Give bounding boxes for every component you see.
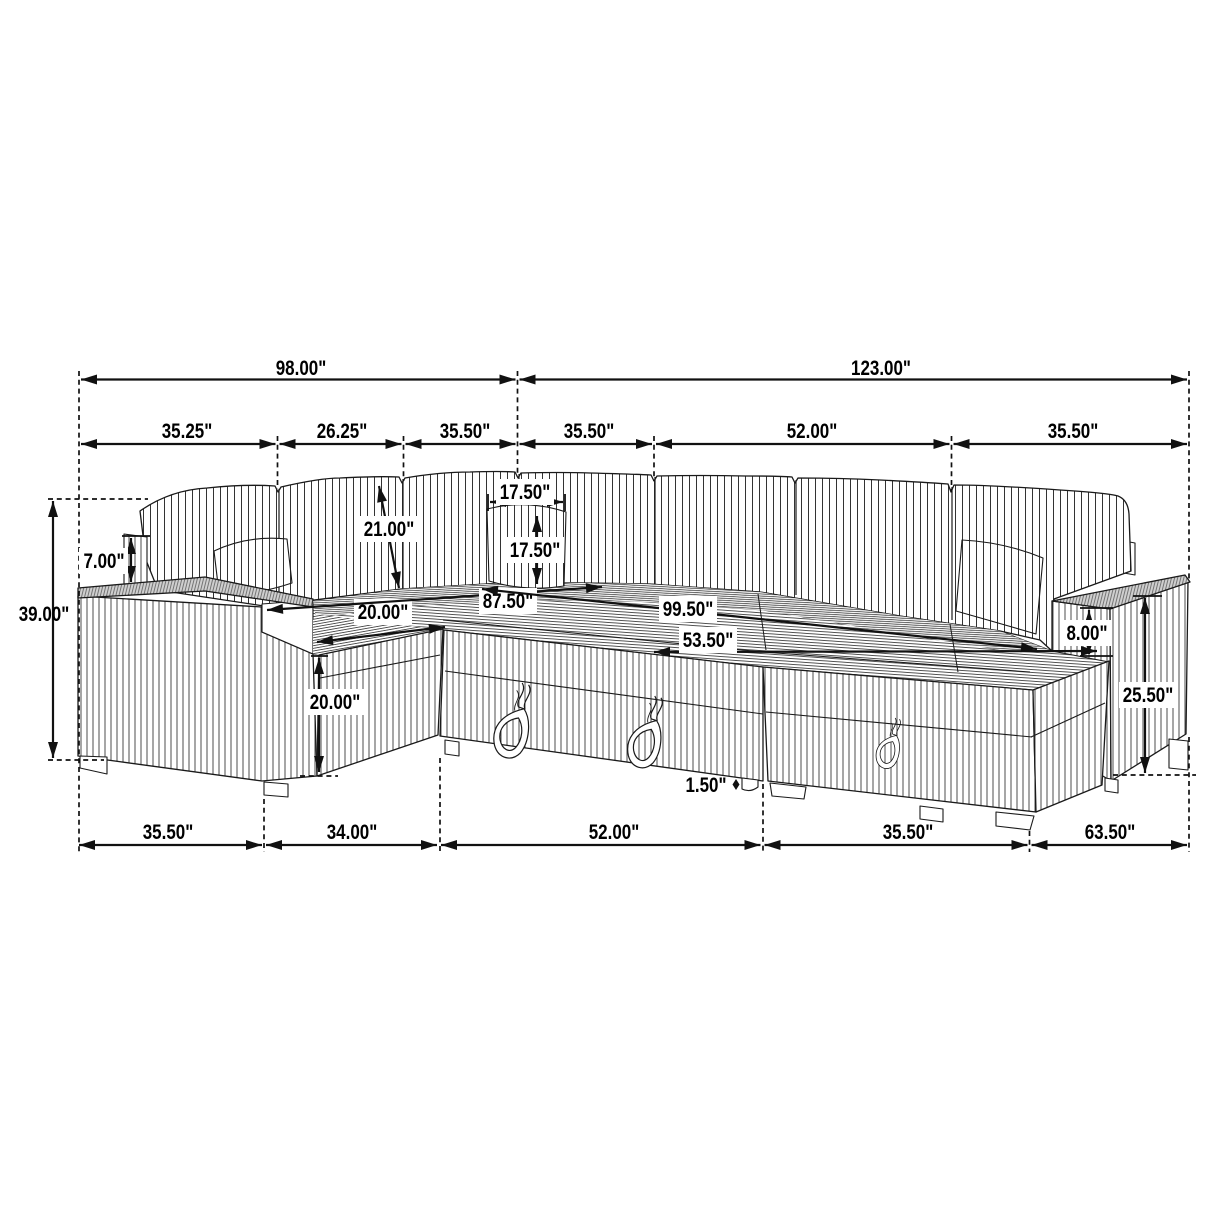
svg-text:26.25": 26.25"	[317, 420, 368, 443]
svg-text:39.00": 39.00"	[19, 603, 70, 626]
svg-text:52.00": 52.00"	[787, 420, 838, 443]
svg-text:1.50": 1.50"	[686, 774, 727, 797]
svg-text:35.50": 35.50"	[1048, 420, 1099, 443]
svg-text:98.00": 98.00"	[276, 357, 327, 380]
svg-text:20.00": 20.00"	[358, 601, 409, 624]
svg-text:123.00": 123.00"	[851, 357, 911, 380]
svg-text:99.50": 99.50"	[663, 598, 714, 621]
svg-text:35.25": 35.25"	[162, 420, 213, 443]
svg-text:25.50": 25.50"	[1123, 684, 1174, 707]
svg-text:35.50": 35.50"	[440, 420, 491, 443]
svg-text:35.50": 35.50"	[143, 821, 194, 844]
svg-text:53.50": 53.50"	[683, 629, 734, 652]
svg-text:35.50": 35.50"	[564, 420, 615, 443]
svg-text:21.00": 21.00"	[364, 518, 415, 541]
svg-text:17.50": 17.50"	[510, 539, 561, 562]
svg-text:34.00": 34.00"	[327, 821, 378, 844]
svg-text:8.00": 8.00"	[1067, 622, 1108, 645]
svg-text:7.00": 7.00"	[84, 550, 125, 573]
svg-text:63.50": 63.50"	[1085, 821, 1136, 844]
svg-text:35.50": 35.50"	[883, 821, 934, 844]
svg-text:17.50": 17.50"	[500, 481, 551, 504]
svg-text:52.00": 52.00"	[589, 821, 640, 844]
svg-text:20.00": 20.00"	[310, 691, 361, 714]
